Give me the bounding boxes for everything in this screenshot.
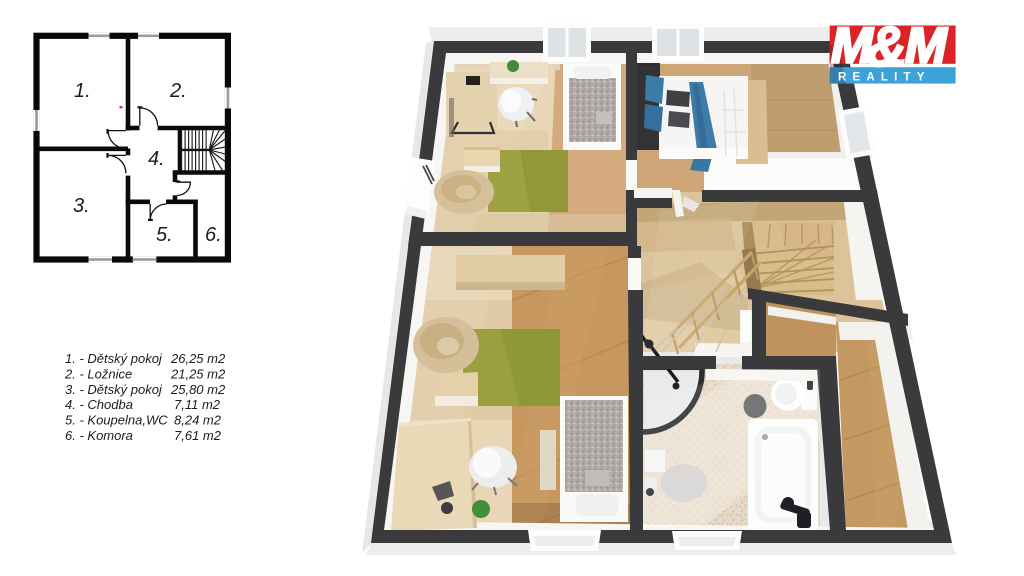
svg-text:2. - Ložnice: 2. - Ložnice [64,366,132,381]
svg-text:4.: 4. [148,148,165,170]
svg-text:6. - Komora: 6. - Komora [65,428,133,443]
svg-text:6.: 6. [205,224,222,246]
svg-text:4. - Chodba: 4. - Chodba [65,397,133,412]
svg-text:5. - Koupelna,WC: 5. - Koupelna,WC [65,413,168,428]
svg-text:7,11 m2: 7,11 m2 [174,397,221,412]
svg-text:8,24 m2: 8,24 m2 [174,413,222,428]
svg-text:1.: 1. [74,80,91,102]
svg-text:3. - Dětský pokoj: 3. - Dětský pokoj [65,382,163,397]
svg-text:7,61 m2: 7,61 m2 [174,428,222,443]
svg-text:26,25 m2: 26,25 m2 [170,351,226,366]
svg-text:1. - Dětský pokoj: 1. - Dětský pokoj [65,351,163,366]
svg-text:5.: 5. [156,224,173,246]
svg-text:REALITY: REALITY [838,72,931,84]
svg-text:21,25 m2: 21,25 m2 [170,366,226,381]
svg-text:M: M [905,18,948,74]
svg-text:2.: 2. [169,80,187,102]
svg-text:25,80 m2: 25,80 m2 [170,382,226,397]
svg-text:3.: 3. [73,195,90,217]
